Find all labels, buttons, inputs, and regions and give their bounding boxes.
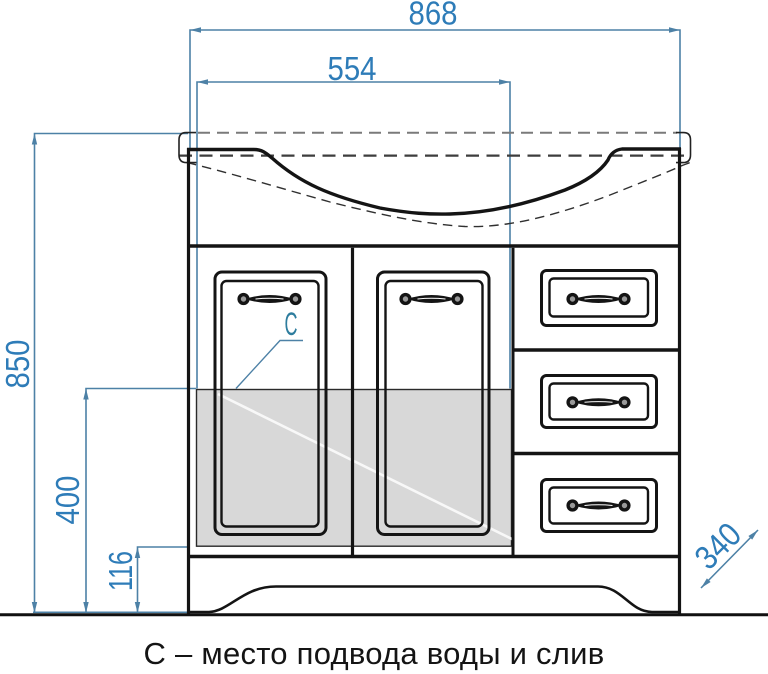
svg-text:С – место подвода воды и слив: С – место подвода воды и слив [144,636,605,671]
svg-text:С: С [285,306,298,342]
svg-text:850: 850 [0,340,37,389]
svg-text:868: 868 [409,0,458,33]
svg-text:116: 116 [103,551,140,591]
svg-text:554: 554 [328,51,377,88]
svg-text:400: 400 [50,476,87,525]
